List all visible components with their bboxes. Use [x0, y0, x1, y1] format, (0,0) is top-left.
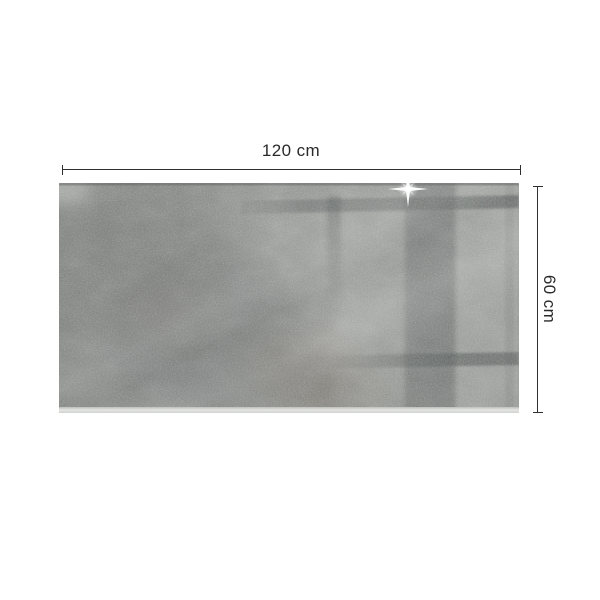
- glass-bottom-edge: [59, 407, 519, 413]
- product-dimension-image: 120 cm 60 cm: [0, 0, 600, 600]
- height-dimension-label: 60 cm: [540, 259, 558, 339]
- width-dimension-tick-left: [62, 165, 63, 176]
- height-dimension-line: [537, 186, 538, 413]
- gloss-sheen: [59, 183, 519, 413]
- width-dimension-label: 120 cm: [231, 141, 351, 161]
- panel-photo: [59, 183, 519, 413]
- width-dimension-line: [62, 169, 521, 170]
- width-dimension-tick-right: [520, 165, 521, 176]
- height-dimension-tick-top: [533, 186, 544, 187]
- top-bevel-shade: [59, 183, 519, 186]
- height-dimension-tick-bottom: [533, 412, 544, 413]
